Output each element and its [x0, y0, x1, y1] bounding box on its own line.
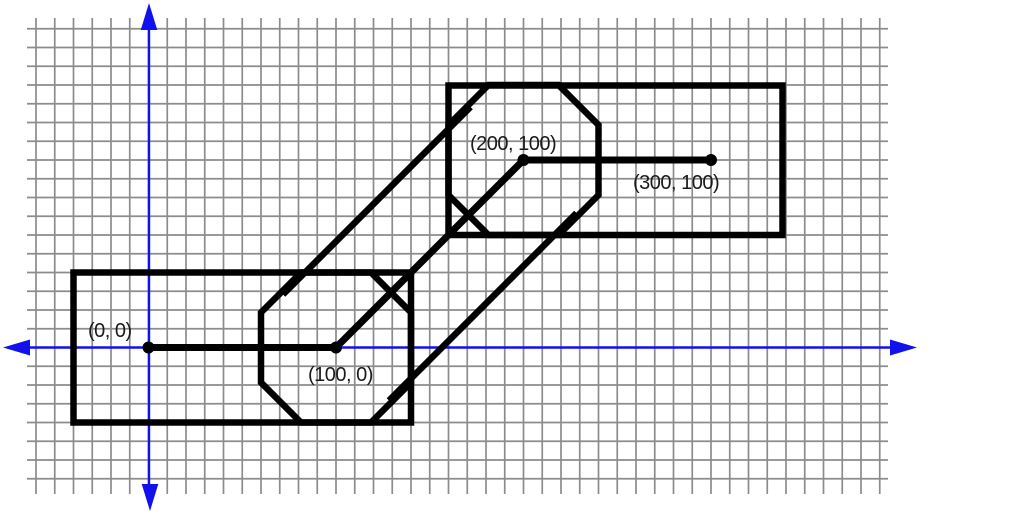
y-axis-bottom-arrow-icon: [142, 484, 159, 511]
label-100-0: (100, 0): [308, 364, 373, 386]
segment2-stroke-lower-edge: [389, 213, 577, 401]
x-axis-left-arrow-icon: [3, 340, 30, 356]
path-point-dot-300-100: [705, 154, 717, 166]
x-axis-right-arrow-icon: [890, 340, 917, 356]
x-axis: [3, 340, 917, 356]
segment2-stroke-upper-edge: [283, 107, 471, 295]
path-point-dot-100-0: [330, 342, 342, 354]
y-axis-top-arrow-icon: [141, 3, 158, 30]
path-point-dot-200-100: [518, 154, 530, 166]
label-origin: (0, 0): [88, 320, 132, 342]
label-200-100: (200, 100): [470, 133, 556, 155]
coordinate-diagram: (0, 0) (100, 0) (200, 100) (300, 100): [0, 0, 1013, 525]
label-300-100: (300, 100): [633, 172, 719, 194]
path-point-dot-0-0: [143, 342, 155, 354]
y-axis: [141, 3, 159, 511]
